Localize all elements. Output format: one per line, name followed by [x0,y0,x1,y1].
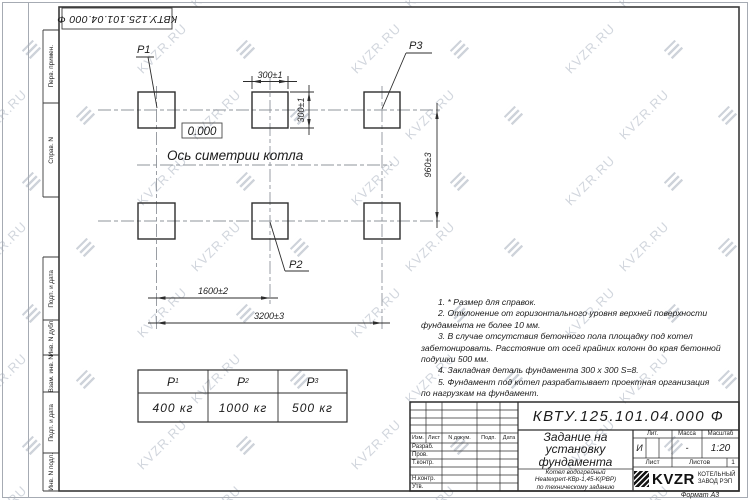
tb-scale-label: Масштаб [702,430,739,438]
dim-300h-label: 300±1 [258,70,283,80]
tb-row-tkontr: Т.контр. [410,459,442,467]
product-line: Котел водогрейный [546,469,606,476]
centerlines [98,77,443,331]
frame-field-label: Справ. N [48,137,55,164]
tb-mass-value: - [672,438,702,458]
tb-col-data: Дата [500,433,518,443]
note-line: фундамента не более 10 мм. [421,320,726,331]
frame-field-label: Инв. N подл. [48,453,55,491]
technical-notes: 1. * Размер для справок. 2. Отклонение о… [421,297,726,400]
tb-sheets-label: Листов [672,458,727,467]
tb-col-ndokum: N докум. [442,433,477,443]
product-line: по техническому заданию [537,484,615,491]
load-table-header-p1: P1 [138,370,208,393]
note-line: по нагрузкам на фундамент. [421,388,726,399]
company-logo-block: KVZR КОТЕЛЬНЫЙ ЗАВОД РЭП [634,467,739,491]
note-line: подушки 500 мм. [421,354,726,365]
leader-p3 [382,53,432,109]
tb-mass-label: Масса [672,430,702,438]
note-line: забетонировать. Расстояние от осей крайн… [421,343,726,354]
tb-col-izm: Изм. [410,433,426,443]
title-block-product: Котел водогрейный Heatexpert-КВр-1,45-К(… [518,469,633,491]
point-label-p1: P1 [137,44,150,56]
dimension-lines [148,76,437,323]
frame-field-label: Взам. инв. N [48,355,55,392]
company-name-line: ЗАВОД РЭП [698,479,736,486]
load-header-base: P [237,375,245,389]
frame-field-podp-data-2: Подп. и дата [43,392,59,453]
load-header-base: P [167,375,175,389]
point-label-p2: P2 [289,259,302,271]
doc-number-rotated-text: КВТУ.125.101.04.000 Ф [57,13,177,25]
leader-p1 [136,57,157,108]
tb-sheet-label: Лист [633,458,672,467]
tb-row-prov: Пров. [410,451,442,459]
frame-field-vzam-inv: Взам. инв. N [43,355,59,392]
dim-3200-label: 3200±3 [254,311,284,321]
frame-field-sprav-n: Справ. N [43,103,59,197]
tb-row-razrab: Разраб. [410,443,442,451]
frame-field-inv-podl: Инв. N подл. [43,453,59,491]
title-block-doc-number: КВТУ.125.101.04.000 Ф [518,402,739,430]
doc-number-rotated-box: КВТУ.125.101.04.000 Ф [62,8,172,29]
tb-col-list: Лист [426,433,442,443]
tb-row-empty [410,467,442,475]
load-header-sub: 3 [315,378,319,385]
title-line: фундамента [539,456,613,469]
load-table-header-p2: P2 [208,370,278,393]
note-line: 1. * Размер для справок. [421,297,726,308]
frame-field-label: Инв. N дубл. [48,319,55,356]
frame-field-label: Подп. и дата [48,270,55,308]
company-name: КОТЕЛЬНЫЙ ЗАВОД РЭП [698,472,736,486]
kvzr-logo-icon [634,471,649,487]
note-line: 2. Отклонение от горизонтального уровня … [421,308,726,319]
frame-field-podp-data-1: Подп. и дата [43,257,59,320]
load-table-value-p3: 500 кг [278,393,347,422]
tb-lit-label: Лит. [633,430,672,438]
product-line: Heatexpert-КВр-1,45-К(РВР) [535,476,616,483]
dim-1600-label: 1600±2 [198,286,228,296]
kvzr-logo-text: KVZR [652,471,695,488]
tb-row-utv: Утв. [410,483,442,491]
title-block-title: Задание на установку фундамента [518,430,633,469]
load-table-header-p3: P3 [278,370,347,393]
company-name-line: КОТЕЛЬНЫЙ [698,472,736,479]
tb-col-podp: Подп. [477,433,500,443]
load-table-value-p2: 1000 кг [208,393,278,422]
format-label: Формат А3 [655,491,745,500]
frame-field-label: Перв. примен. [48,45,55,88]
load-table-value-p1: 400 кг [138,393,208,422]
tb-lit-value: И [633,438,646,458]
note-line: 3. В случае отсутствия бетонного пола пл… [421,331,726,342]
point-label-p3: P3 [409,40,423,52]
note-line: 5. Фундамент под котел разрабатывает про… [421,377,726,388]
drawing-sheet: KVZR.RUKVZR.RUKVZR.RUKVZR.RUKVZR.RUKVZR.… [0,0,750,500]
boiler-symmetry-axis-label: Ось симетрии котла [167,148,304,163]
title-line: установку [546,443,606,456]
dim-960-label: 960±3 [423,153,433,178]
frame-field-label: Подп. и дата [48,404,55,442]
tb-sheets-value: 1 [727,458,739,467]
elevation-mark-value: 0.000 [188,126,217,138]
frame-field-inv-dubl: Инв. N дубл. [43,320,59,355]
tb-row-nkontr: Н.контр. [410,475,442,483]
dim-300v-label: 300±1 [296,98,306,123]
note-line: 4. Закладная деталь фундамента 300 х 300… [421,365,726,376]
load-header-base: P [307,375,315,389]
tb-scale-value: 1:20 [702,438,739,458]
load-header-sub: 2 [245,378,249,385]
load-header-sub: 1 [175,378,179,385]
frame-field-perv-primen: Перв. примен. [43,30,59,103]
